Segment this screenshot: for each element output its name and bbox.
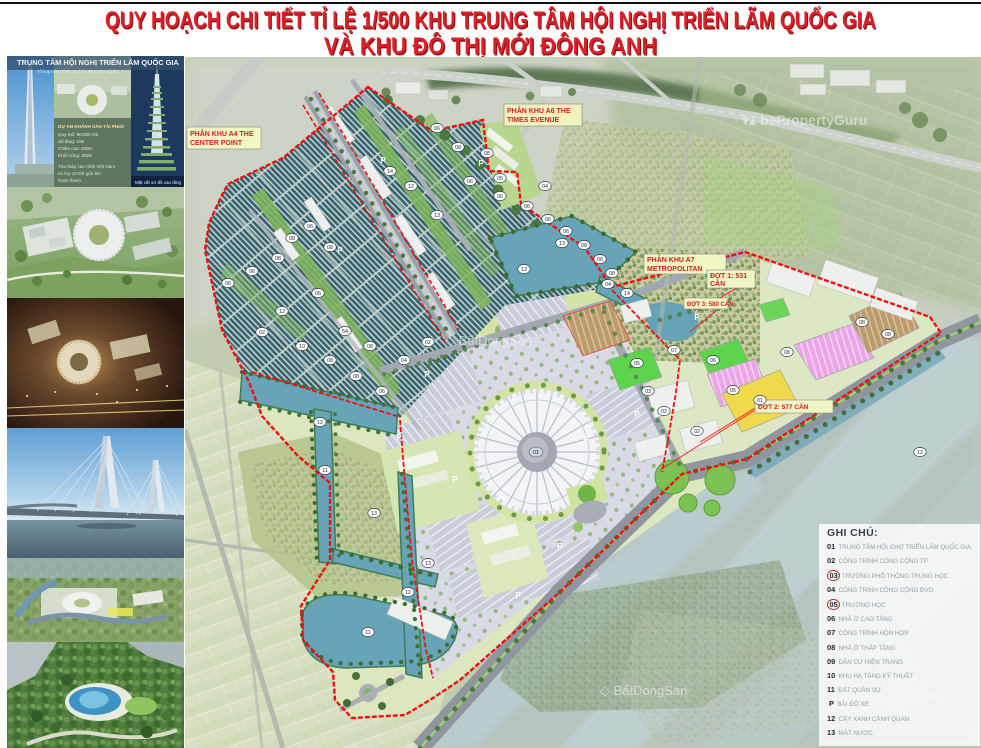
svg-text:Khởi công: 2026: Khởi công: 2026 (58, 152, 92, 158)
svg-text:11: 11 (365, 630, 371, 636)
svg-text:TIMES EVENUE: TIMES EVENUE (507, 117, 559, 124)
svg-text:12: 12 (405, 590, 411, 596)
svg-text:ĐỢT 1: 531: ĐỢT 1: 531 (710, 273, 747, 280)
svg-text:TRUNG TÂM HỘI NGHỊ TRIỂN LÃM Q: TRUNG TÂM HỘI NGHỊ TRIỂN LÃM QUỐC GIA (17, 57, 179, 67)
svg-text:03: 03 (645, 389, 651, 395)
svg-text:hoàn thành: hoàn thành (58, 178, 81, 183)
svg-text:P: P (337, 246, 343, 255)
svg-text:08: 08 (367, 344, 373, 350)
svg-text:08: 08 (289, 236, 295, 242)
svg-text:02: 02 (259, 330, 265, 336)
svg-text:13: 13 (425, 561, 431, 567)
svg-text:P: P (557, 542, 563, 551)
svg-text:02: 02 (425, 340, 431, 346)
svg-text:P: P (396, 433, 402, 442)
svg-text:CENTER POINT: CENTER POINT (190, 140, 243, 147)
svg-text:ĐỢT 2: 577 CĂN: ĐỢT 2: 577 CĂN (758, 402, 809, 411)
svg-text:13: 13 (521, 267, 527, 273)
svg-text:◇ BấtDongSan: ◇ BấtDongSan (445, 333, 532, 348)
svg-text:06: 06 (315, 291, 321, 297)
svg-text:13: 13 (559, 241, 565, 247)
svg-text:11: 11 (322, 468, 328, 474)
svg-text:08: 08 (609, 271, 615, 277)
svg-text:14: 14 (624, 291, 630, 297)
svg-text:06: 06 (710, 358, 716, 364)
svg-text:05: 05 (634, 361, 640, 367)
svg-text:08: 08 (327, 245, 333, 251)
svg-text:P: P (515, 591, 521, 600)
svg-text:và top 10 thế giới khi: và top 10 thế giới khi (58, 171, 101, 176)
svg-text:DỰ ÁN KHÁNH SÀN TÀI PHÚC: DỰ ÁN KHÁNH SÀN TÀI PHÚC (58, 123, 126, 129)
svg-text:05: 05 (497, 176, 503, 182)
svg-text:05: 05 (730, 388, 736, 394)
svg-text:P: P (478, 159, 484, 168)
svg-text:08: 08 (327, 358, 333, 364)
svg-text:06: 06 (434, 126, 440, 132)
svg-text:Số tầng: 108: Số tầng: 108 (58, 139, 84, 144)
svg-text:08: 08 (885, 332, 891, 338)
svg-text:02: 02 (694, 429, 700, 435)
svg-text:06: 06 (597, 257, 603, 263)
svg-text:13: 13 (371, 511, 377, 517)
svg-text:12: 12 (408, 184, 414, 190)
svg-text:08: 08 (455, 145, 461, 151)
svg-text:Chiều cao: 639m: Chiều cao: 639m (58, 146, 93, 151)
svg-text:P: P (452, 475, 458, 484)
svg-text:06: 06 (249, 269, 255, 275)
svg-text:P: P (634, 410, 640, 419)
svg-text:04: 04 (542, 184, 548, 190)
svg-text:06: 06 (225, 281, 231, 287)
svg-text:08: 08 (859, 320, 865, 326)
svg-text:13: 13 (434, 213, 440, 219)
svg-text:◇ BấtDongSan: ◇ BấtDongSan (600, 683, 687, 698)
svg-text:06: 06 (307, 224, 313, 230)
svg-text:01: 01 (533, 450, 539, 456)
svg-text:07: 07 (671, 348, 677, 354)
svg-text:06: 06 (545, 217, 551, 223)
svg-text:06: 06 (563, 229, 569, 235)
svg-text:06: 06 (524, 204, 530, 210)
svg-text:08: 08 (784, 350, 790, 356)
svg-text:04: 04 (401, 358, 407, 364)
svg-text:08: 08 (353, 374, 359, 380)
svg-text:METROPOLITAN: METROPOLITAN (647, 266, 702, 273)
svg-text:06: 06 (467, 179, 473, 185)
svg-text:Mặt cắt sơ đồ cao tầng: Mặt cắt sơ đồ cao tầng (135, 179, 181, 185)
svg-text:14: 14 (387, 169, 393, 175)
svg-text:PHÂN KHU A4 THE: PHÂN KHU A4 THE (190, 129, 254, 138)
svg-text:04: 04 (605, 282, 611, 288)
svg-text:P: P (694, 313, 700, 322)
svg-text:Tòa tháp cao nhất Việt Nam: Tòa tháp cao nhất Việt Nam (58, 164, 115, 169)
svg-text:▾▴ bePropertyGuru: ▾▴ bePropertyGuru (741, 112, 867, 128)
svg-text:PHÂN KHU A6 THE: PHÂN KHU A6 THE (507, 106, 571, 115)
svg-text:02: 02 (661, 409, 667, 415)
svg-text:06: 06 (497, 194, 503, 200)
svg-text:08: 08 (581, 243, 587, 249)
svg-text:ĐỢT 3: 580 CĂN: ĐỢT 3: 580 CĂN (687, 301, 733, 308)
svg-text:Tổ hợp công trình đa chức năng: Tổ hợp công trình đa chức năng quy mô lớ… (37, 69, 120, 74)
svg-text:54: 54 (342, 329, 348, 335)
svg-text:Quy mô: 90.000 m2: Quy mô: 90.000 m2 (58, 132, 99, 137)
svg-text:P: P (424, 370, 430, 379)
svg-text:12: 12 (317, 420, 323, 426)
svg-text:PHÂN KHU A7: PHÂN KHU A7 (647, 255, 695, 264)
svg-text:CĂN: CĂN (710, 279, 725, 288)
svg-text:01: 01 (757, 398, 763, 404)
svg-text:06: 06 (379, 389, 385, 395)
svg-text:P: P (583, 435, 589, 444)
svg-text:10: 10 (299, 344, 305, 350)
svg-text:08: 08 (484, 151, 490, 157)
svg-text:12: 12 (917, 450, 923, 456)
svg-text:08: 08 (275, 256, 281, 262)
svg-text:12: 12 (279, 309, 285, 315)
svg-text:P: P (380, 156, 386, 165)
